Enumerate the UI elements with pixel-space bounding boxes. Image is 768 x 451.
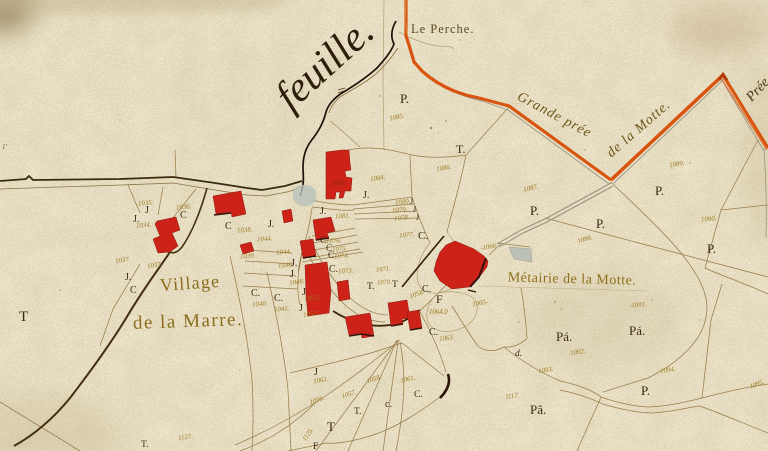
svg-text:1034.: 1034. bbox=[136, 221, 152, 229]
svg-text:1077.: 1077. bbox=[399, 231, 415, 239]
svg-text:C: C bbox=[180, 210, 187, 221]
svg-text:Pá.: Pá. bbox=[629, 323, 645, 338]
svg-text:P.: P. bbox=[400, 91, 409, 106]
svg-text:J.: J. bbox=[363, 190, 369, 201]
svg-text:1079.: 1079. bbox=[392, 206, 408, 214]
svg-text:1081.: 1081. bbox=[335, 212, 351, 220]
svg-text:C.: C. bbox=[414, 390, 423, 400]
svg-text:J.: J. bbox=[125, 272, 131, 283]
svg-text:T: T bbox=[19, 309, 28, 325]
svg-text:Village: Village bbox=[159, 271, 221, 295]
svg-text:C.: C. bbox=[251, 288, 260, 299]
svg-text:T.: T. bbox=[141, 440, 148, 450]
svg-text:1044.: 1044. bbox=[276, 248, 292, 256]
svg-text:1039.: 1039. bbox=[240, 252, 256, 260]
svg-text:P.: P. bbox=[530, 203, 539, 218]
svg-text:T.: T. bbox=[367, 282, 374, 292]
svg-text:Pâ.: Pâ. bbox=[530, 402, 546, 417]
svg-text:1070.: 1070. bbox=[377, 278, 393, 286]
svg-text:1080.: 1080. bbox=[395, 198, 411, 206]
svg-text:d.: d. bbox=[515, 349, 522, 359]
svg-text:1046.: 1046. bbox=[278, 262, 294, 270]
svg-text:J.: J. bbox=[268, 219, 274, 230]
svg-text:1074.: 1074. bbox=[334, 252, 350, 260]
svg-text:C.: C. bbox=[429, 327, 438, 338]
svg-text:P.: P. bbox=[641, 383, 650, 398]
svg-text:T: T bbox=[392, 280, 398, 290]
svg-text:Le Perche.: Le Perche. bbox=[411, 22, 474, 36]
svg-text:1073.: 1073. bbox=[338, 267, 354, 275]
svg-text:J: J bbox=[314, 367, 318, 378]
svg-text:1036.: 1036. bbox=[176, 203, 192, 211]
svg-text:1040.: 1040. bbox=[252, 300, 268, 308]
svg-text:C.: C. bbox=[329, 264, 338, 275]
svg-text:1035.: 1035. bbox=[138, 199, 154, 207]
svg-text:1071.: 1071. bbox=[376, 265, 392, 273]
svg-text:1090.: 1090. bbox=[701, 215, 717, 223]
svg-text:C.: C. bbox=[418, 230, 428, 242]
svg-text:C: C bbox=[225, 221, 232, 232]
svg-text:F: F bbox=[436, 292, 443, 306]
svg-text:J: J bbox=[416, 213, 419, 222]
svg-text:1': 1' bbox=[2, 143, 8, 151]
svg-text:1038.: 1038. bbox=[237, 226, 253, 234]
svg-text:T.: T. bbox=[354, 407, 361, 417]
svg-text:T: T bbox=[327, 419, 335, 434]
svg-text:P.: P. bbox=[655, 183, 664, 198]
svg-text:C.: C. bbox=[274, 293, 283, 304]
svg-text:1078.: 1078. bbox=[394, 214, 410, 222]
svg-text:Pá.: Pá. bbox=[556, 329, 572, 344]
svg-text:F: F bbox=[313, 442, 318, 451]
svg-text:T.: T. bbox=[456, 142, 465, 156]
svg-text:J.: J. bbox=[320, 206, 326, 217]
svg-text:c.: c. bbox=[385, 399, 392, 410]
svg-text:P.: P. bbox=[707, 241, 716, 256]
svg-text:P.: P. bbox=[596, 216, 605, 231]
svg-text:1064.0: 1064.0 bbox=[429, 309, 448, 316]
svg-text:1076.: 1076. bbox=[326, 237, 342, 245]
svg-text:C: C bbox=[130, 285, 137, 296]
svg-text:de la Marre.: de la Marre. bbox=[133, 309, 244, 334]
svg-text:1044.: 1044. bbox=[257, 235, 273, 243]
svg-text:1045.: 1045. bbox=[274, 305, 290, 313]
svg-text:J: J bbox=[290, 269, 294, 280]
